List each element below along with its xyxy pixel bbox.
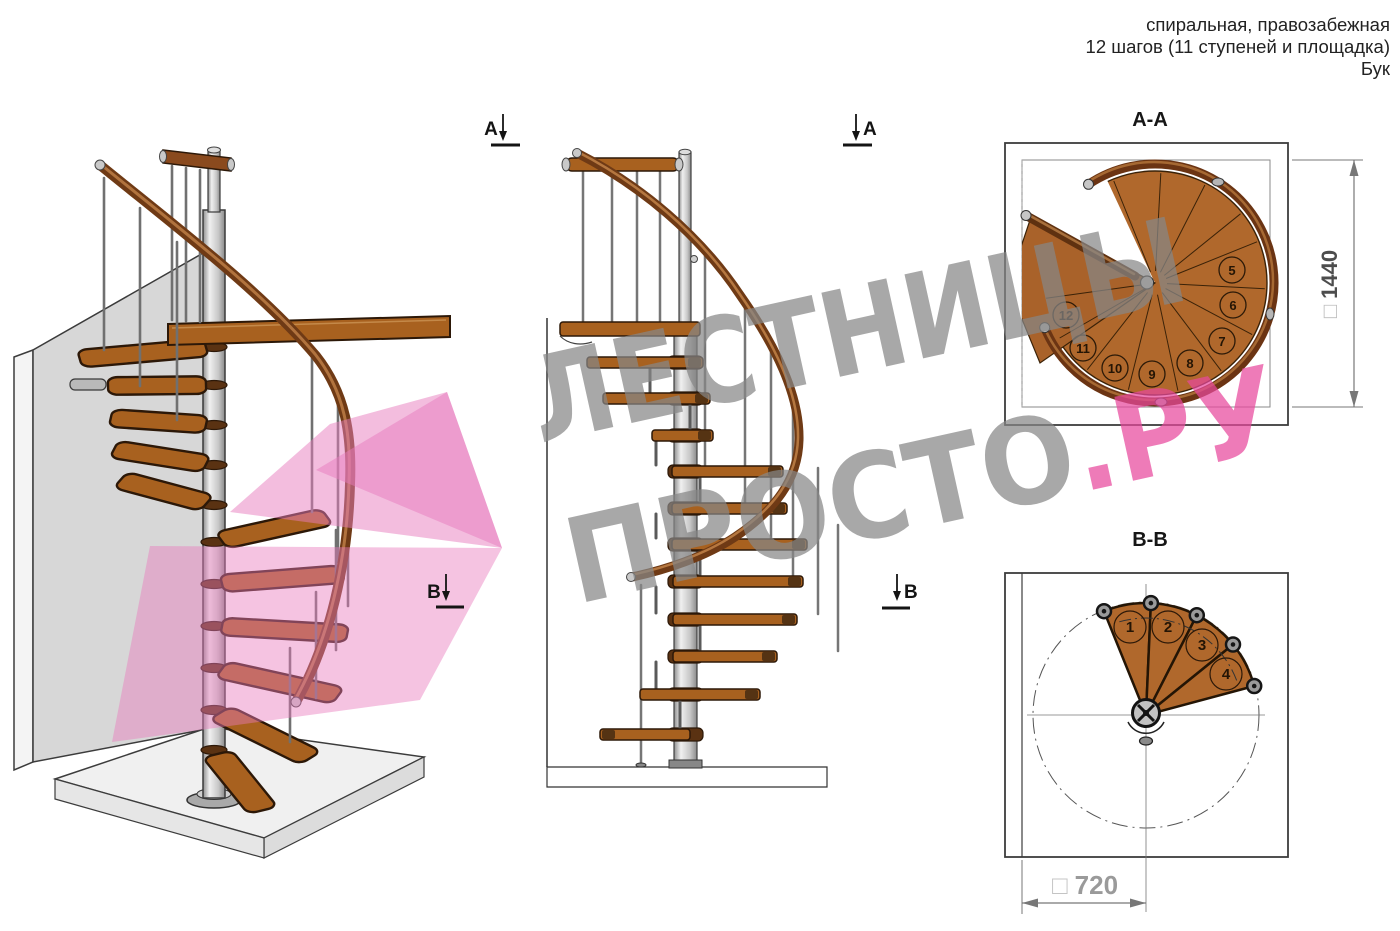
section-arrowhead-icon — [852, 131, 860, 141]
dimension-arrow-icon — [1350, 391, 1359, 407]
svg-text:2: 2 — [1164, 619, 1172, 636]
section-letter: В — [904, 582, 918, 603]
section-arrowhead-icon — [499, 131, 507, 141]
column-cap — [679, 149, 691, 155]
railing-cap — [160, 151, 167, 163]
plan-view-bb: В-В — [1005, 529, 1288, 914]
svg-text:3: 3 — [1198, 637, 1206, 654]
staircase-drawing: А А В В А-А — [0, 0, 1400, 931]
svg-text:1: 1 — [1126, 619, 1134, 636]
spec-line-material: Бук — [1361, 58, 1391, 79]
section-letter: А — [484, 119, 498, 140]
dimension-arrow-icon — [1022, 899, 1038, 908]
handrail-cap — [1021, 211, 1031, 221]
view-title: А-А — [1132, 109, 1168, 131]
handrail-cap — [95, 160, 105, 170]
svg-text:4: 4 — [1222, 666, 1231, 683]
handrail-joint — [691, 256, 698, 263]
floor-section — [547, 767, 827, 787]
handrail-cap — [573, 149, 582, 158]
railing-cap — [562, 158, 570, 171]
spec-line-type: спиральная, правозабежная — [1146, 14, 1390, 35]
dimension-1440: □1440 — [1292, 160, 1363, 407]
section-arrowhead-icon — [893, 591, 901, 601]
section-letter: В — [427, 582, 441, 603]
title-block: спиральная, правозабежная 12 шагов (11 с… — [1086, 14, 1391, 79]
handrail-cap — [1084, 179, 1094, 189]
railing-cap — [228, 159, 235, 171]
section-marker-b-right: В — [882, 574, 918, 608]
spec-line-steps: 12 шагов (11 ступеней и площадка) — [1086, 36, 1390, 57]
column-base — [669, 760, 702, 768]
watermark: ЛЕСТНИЦЫ ПРОСТО.РУ — [516, 179, 1291, 632]
dimension-label: □1440 — [1317, 250, 1342, 318]
dimension-720: □720 — [1022, 860, 1146, 914]
svg-text:5: 5 — [1228, 263, 1235, 278]
railing-cap — [675, 158, 683, 171]
svg-text:7: 7 — [1218, 334, 1225, 349]
svg-text:6: 6 — [1229, 298, 1236, 313]
dimension-label: □720 — [1052, 870, 1118, 900]
wall-edge — [14, 350, 33, 770]
section-marker-a-left: А — [484, 114, 520, 145]
baluster-base — [636, 763, 646, 767]
drawing-sheet: А А В В А-А — [0, 0, 1400, 931]
dimension-arrow-icon — [1130, 899, 1146, 908]
wall-support-rod — [70, 379, 106, 390]
section-letter: А — [863, 119, 877, 140]
view-title: В-В — [1132, 529, 1168, 551]
section-marker-a-right: А — [843, 114, 877, 145]
dimension-arrow-icon — [1350, 160, 1359, 176]
column-cap — [208, 147, 221, 153]
